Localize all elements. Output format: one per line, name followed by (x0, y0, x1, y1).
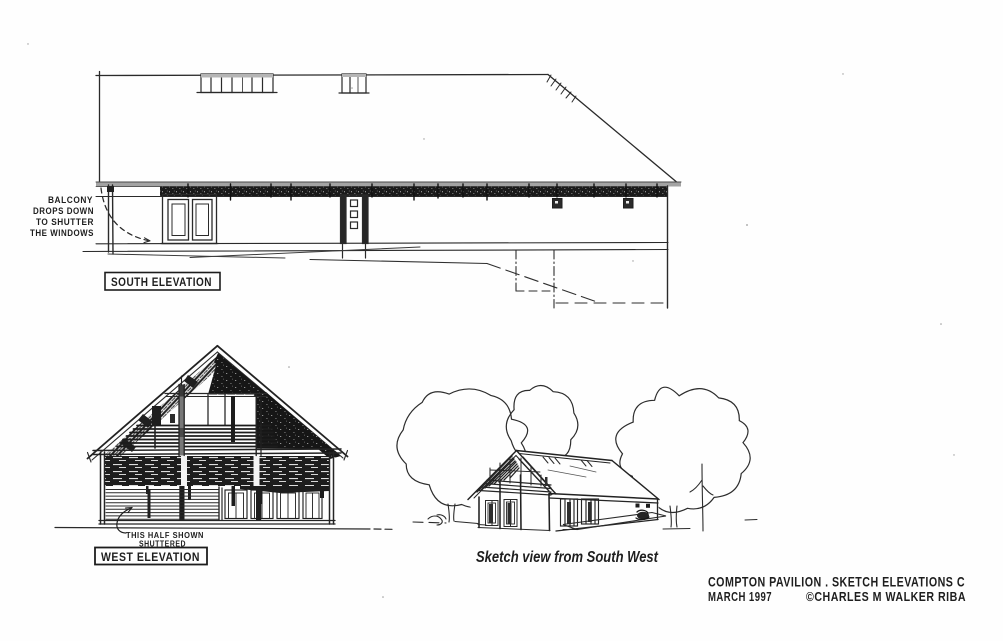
svg-text:DROPS DOWN: DROPS DOWN (33, 206, 94, 216)
svg-text:COMPTON PAVILION . SKETCH ELE: COMPTON PAVILION . SKETCH ELEVATIONS C (708, 574, 965, 590)
svg-text:©CHARLES M WALKER RIBA: ©CHARLES M WALKER RIBA (806, 589, 966, 604)
svg-text:MARCH 1997: MARCH 1997 (708, 589, 772, 604)
svg-text:WEST ELEVATION: WEST ELEVATION (101, 550, 200, 564)
svg-text:BALCONY: BALCONY (48, 195, 93, 205)
svg-text:THE WINDOWS: THE WINDOWS (30, 228, 94, 238)
svg-text:Sketch view from South West: Sketch view from South West (476, 549, 659, 566)
svg-text:TO SHUTTER: TO SHUTTER (36, 217, 94, 227)
svg-text:SOUTH ELEVATION: SOUTH ELEVATION (111, 275, 212, 289)
